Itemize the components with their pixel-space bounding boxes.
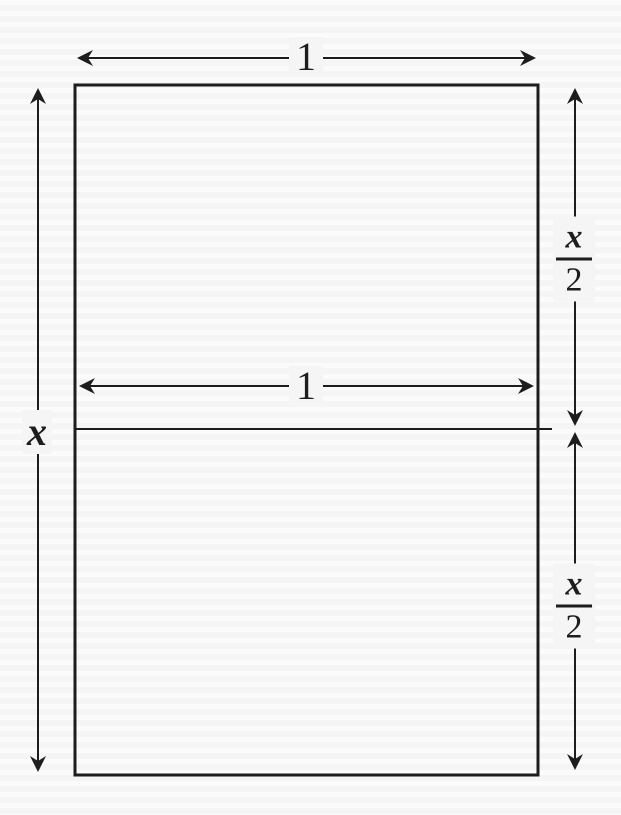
fraction-denominator: 2: [566, 608, 583, 645]
lower-half-height-label: x 2: [553, 564, 595, 649]
diagram-canvas: 1 1 x x 2 x 2: [0, 0, 621, 815]
top-width-label: 1: [289, 37, 323, 77]
fraction-denominator: 2: [566, 261, 583, 298]
inner-width-label: 1: [289, 366, 323, 406]
upper-half-height-label: x 2: [553, 217, 595, 302]
fraction-numerator: x: [566, 221, 583, 258]
total-height-label: x: [22, 410, 52, 454]
fraction-numerator: x: [566, 568, 583, 605]
